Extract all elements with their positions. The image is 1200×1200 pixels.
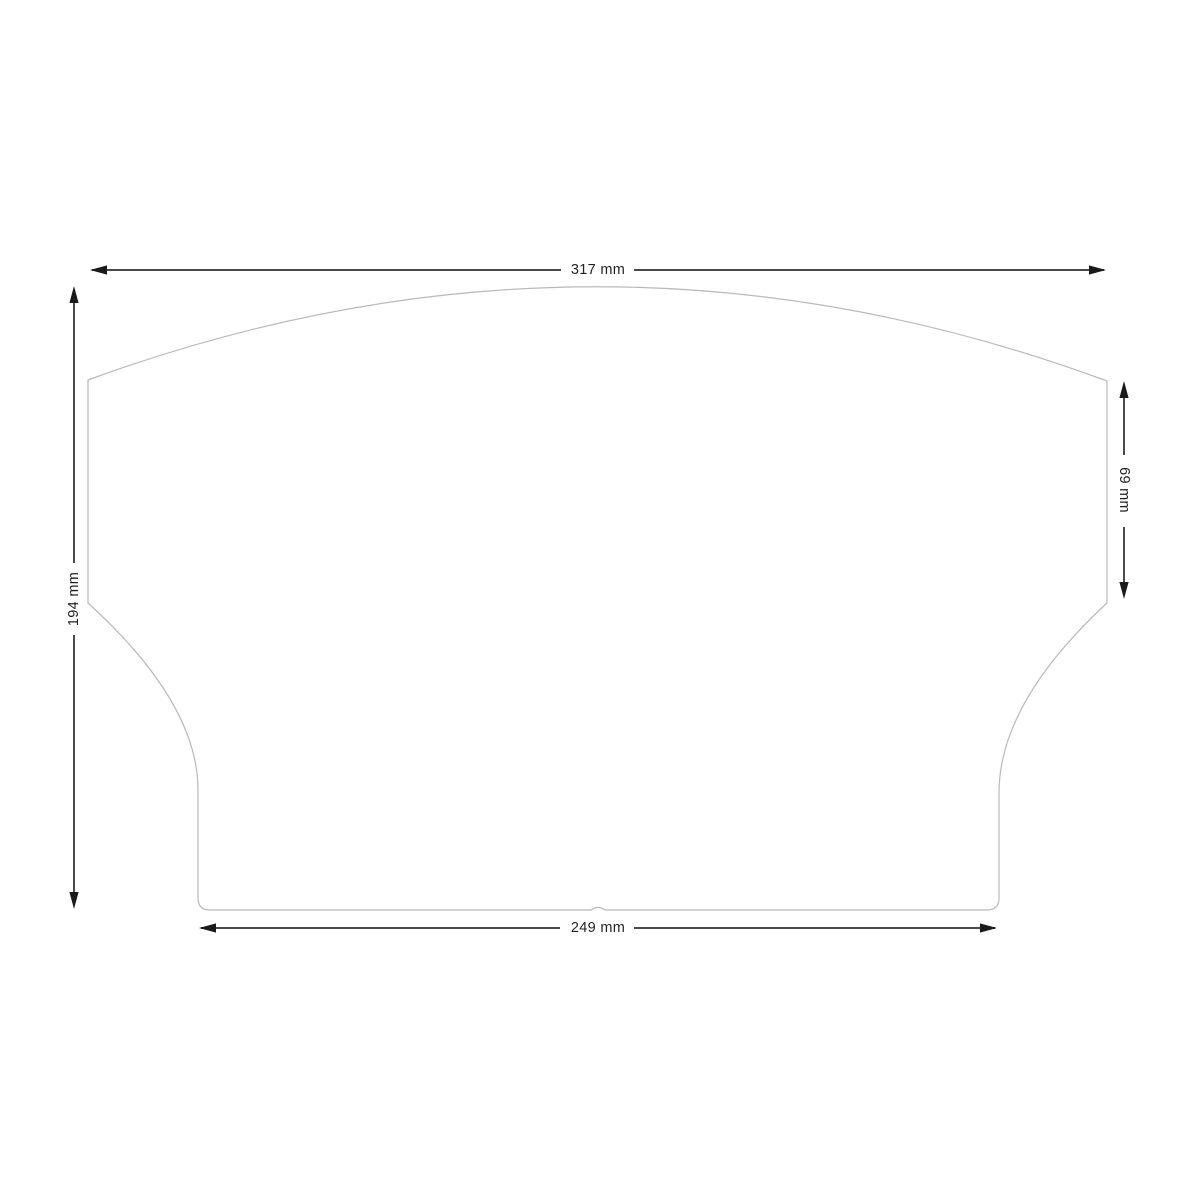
arrow-right-icon	[980, 923, 997, 932]
part-outline	[88, 287, 1107, 910]
arrow-down-icon	[69, 892, 78, 909]
dimension-left-height: 194 mm	[66, 286, 82, 909]
arrow-left-icon	[199, 923, 216, 932]
dimension-bottom-width: 249 mm	[199, 920, 997, 936]
arrow-up-icon	[1119, 381, 1128, 398]
dimension-label-left: 194 mm	[66, 572, 82, 626]
dimension-label-top: 317 mm	[571, 262, 625, 278]
drawing-sheet: 317 mm 194 mm 69 mm 249 mm	[0, 0, 1200, 1200]
arrow-right-icon	[1089, 265, 1106, 274]
dimension-label-bottom: 249 mm	[571, 920, 625, 936]
dimension-right-height: 69 mm	[1116, 381, 1132, 599]
diagram-canvas: 317 mm 194 mm 69 mm 249 mm	[0, 0, 1200, 1200]
arrow-up-icon	[69, 286, 78, 303]
dimension-label-right: 69 mm	[1116, 467, 1132, 513]
dimension-top-width: 317 mm	[90, 262, 1106, 278]
arrow-left-icon	[90, 265, 107, 274]
arrow-down-icon	[1119, 582, 1128, 599]
